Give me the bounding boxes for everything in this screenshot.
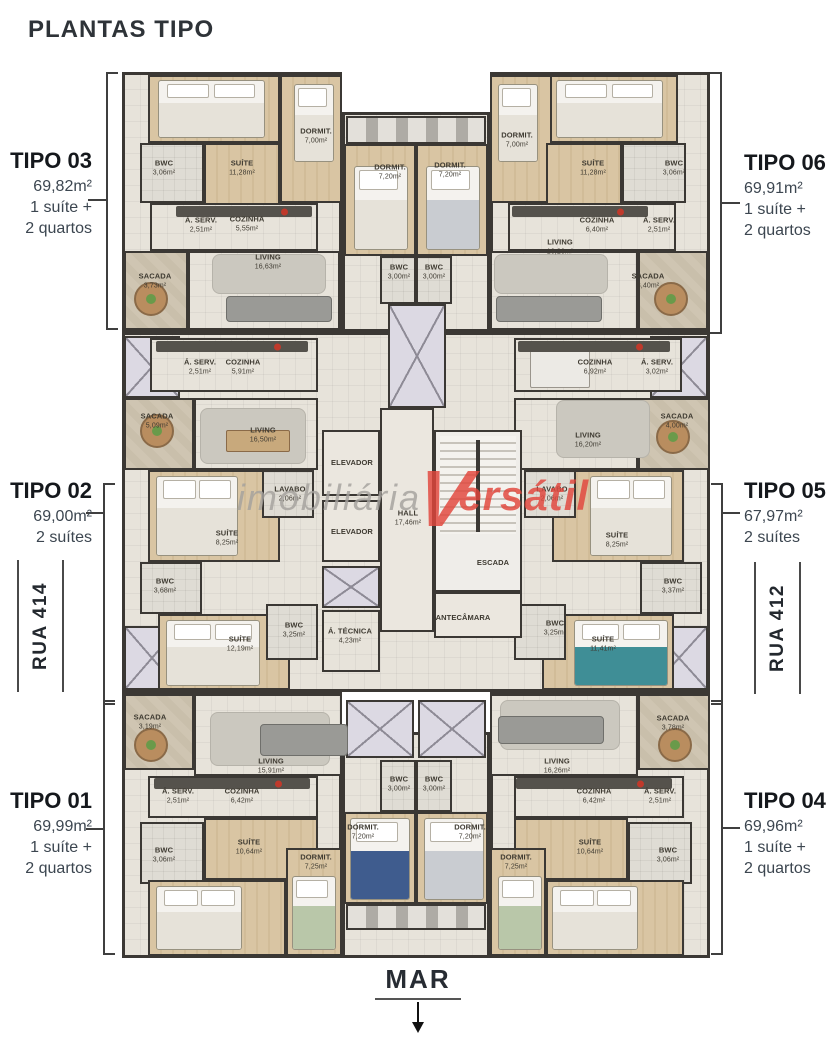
room-label: BWC3,25m²: [283, 621, 305, 640]
tipo02-bracket: [103, 483, 115, 705]
living-rug: [494, 254, 608, 294]
tipo03-label-block: TIPO 03 69,82m² 1 suíte + 2 quartos: [0, 148, 92, 239]
tipo02-label-block: TIPO 02 69,00m² 2 suítes: [0, 478, 92, 549]
sofa: [260, 724, 348, 756]
room-label: ESCADA: [477, 558, 509, 568]
room-label: BWC3,06m²: [153, 159, 175, 178]
room-label: BWC3,06m²: [663, 159, 685, 178]
room-label: BWC3,06m²: [153, 846, 175, 865]
kitchen-counter: [518, 341, 670, 352]
room-label: COZINHA6,42m²: [225, 787, 260, 806]
room-label: BWC3,25m²: [544, 619, 566, 638]
room-label: BWC3,37m²: [662, 577, 684, 596]
room-label: Á. SERV.3,02m²: [641, 358, 673, 377]
tipo04-bracket-tick: [723, 827, 740, 829]
room-label: COZINHA5,91m²: [226, 358, 261, 377]
room-label: LAVABO2,06m²: [274, 485, 305, 504]
room-label: BWC3,00m²: [388, 263, 410, 282]
stove-icon: [636, 343, 643, 350]
tipo05-area: 67,97m²: [744, 507, 826, 528]
tipo01-label-block: TIPO 01 69,99m² 1 suíte + 2 quartos: [0, 788, 92, 879]
room-label: SACADA3,78m²: [657, 714, 690, 733]
bed: [498, 84, 538, 162]
tipo01-area: 69,99m²: [0, 817, 92, 838]
bed: [294, 84, 334, 162]
balcony-table: [134, 728, 168, 762]
mar-arrow-icon: [412, 1022, 424, 1033]
room-label: LIVING16,26m²: [547, 238, 573, 257]
tipo03-area: 69,82m²: [0, 177, 92, 198]
tipo06-name: TIPO 06: [744, 150, 826, 176]
room-label: DORMIT.7,20m²: [454, 823, 486, 842]
stove-icon: [637, 780, 644, 787]
page-title: PLANTAS TIPO: [28, 16, 214, 44]
room-label: BWC3,00m²: [388, 775, 410, 794]
room-label: BWC3,00m²: [423, 263, 445, 282]
room-label: COZINHA5,55m²: [230, 215, 265, 234]
tipo02-name: TIPO 02: [0, 478, 92, 504]
bed: [590, 476, 672, 556]
room-label: DORMIT.7,25m²: [300, 853, 332, 872]
room-label: SACADA4,00m²: [661, 412, 694, 431]
bed: [552, 886, 638, 950]
room-label: ELEVADOR: [331, 527, 373, 537]
tipo06-area: 69,91m²: [744, 179, 826, 200]
room-label: DORMIT.7,20m²: [347, 823, 379, 842]
stove-icon: [617, 208, 624, 215]
kitchen-counter: [156, 341, 308, 352]
tipo01-name: TIPO 01: [0, 788, 92, 814]
room-label: SACADA5,09m²: [141, 412, 174, 431]
room-label: SUÍTE11,41m²: [590, 635, 616, 654]
room-label: SUÍTE12,19m²: [227, 635, 253, 654]
stove-icon: [281, 208, 288, 215]
window-band-bottom: [346, 904, 486, 930]
sofa: [498, 716, 604, 744]
living-rug: [556, 400, 650, 458]
tipo01-bracket: [103, 700, 115, 955]
tipo03-name: TIPO 03: [0, 148, 92, 174]
balcony-table: [658, 728, 692, 762]
window-band-top: [346, 116, 486, 144]
room-label: COZINHA6,40m²: [580, 216, 615, 235]
room-label: SUÍTE11,28m²: [229, 159, 255, 178]
shaft-hatched-bottom-left: [346, 700, 414, 758]
room-label: SACADA3,40m²: [632, 272, 665, 291]
room-label: BWC3,06m²: [657, 846, 679, 865]
bed: [574, 620, 668, 686]
tipo04-label-block: TIPO 04 69,96m² 1 suíte + 2 quartos: [744, 788, 826, 879]
room-label: SACADA3,19m²: [134, 713, 167, 732]
room-label: SUÍTE8,25m²: [216, 529, 239, 548]
room-label: LAVABO2,06m²: [536, 485, 567, 504]
room-label: COZINHA6,42m²: [577, 787, 612, 806]
room-label: SUÍTE10,64m²: [577, 838, 603, 857]
street-line: [754, 562, 756, 694]
room-label: Á. SERV.2,51m²: [162, 787, 194, 806]
mar-label: MAR: [358, 964, 478, 995]
room-label: COZINHA6,92m²: [578, 358, 613, 377]
stair-rail: [476, 440, 480, 532]
room-label: Á. SERV.2,51m²: [185, 216, 217, 235]
tipo03-bracket: [106, 72, 118, 330]
room-label: SUÍTE10,64m²: [236, 838, 262, 857]
shaft-hatched-bottom-right: [418, 700, 486, 758]
room-label: Á. SERV.2,51m²: [184, 358, 216, 377]
room-label: ANTECÂMARA: [436, 613, 491, 623]
tipo02-area: 69,00m²: [0, 507, 92, 528]
stove-icon: [274, 343, 281, 350]
bed: [158, 80, 265, 138]
street-line: [17, 560, 19, 692]
stove-icon: [275, 780, 282, 787]
tipo05-bracket-tick: [723, 512, 740, 514]
room-label: ELEVADOR: [331, 458, 373, 468]
room-label: DORMIT.7,20m²: [434, 161, 466, 180]
tipo04-area: 69,96m²: [744, 817, 826, 838]
sofa: [226, 296, 332, 322]
bed: [498, 876, 542, 950]
tipo05-label-block: TIPO 05 67,97m² 2 suítes: [744, 478, 826, 549]
street-line: [799, 562, 801, 694]
street-label-rua-414: RUA 414: [17, 560, 64, 692]
room-label: DORMIT.7,25m²: [500, 853, 532, 872]
room-label: DORMIT.7,20m²: [374, 163, 406, 182]
mar-arrow-stem: [417, 1002, 419, 1022]
shaft-hatched-top: [388, 304, 446, 408]
tipo06-bracket-tick: [722, 202, 740, 204]
room-label: LIVING16,50m²: [250, 426, 276, 445]
tipo05-name: TIPO 05: [744, 478, 826, 504]
room-label: LIVING16,26m²: [544, 757, 570, 776]
floor-plan-page: PLANTAS TIPO TIPO 03 69,82m² 1 suíte + 2…: [0, 0, 826, 1050]
tipo05-bracket: [711, 483, 723, 705]
sofa: [496, 296, 602, 322]
room-label: Á. SERV.2,51m²: [643, 216, 675, 235]
mar-line: [375, 998, 461, 1000]
room-label: SUÍTE11,28m²: [580, 159, 606, 178]
room-label: SACADA3,73m²: [139, 272, 172, 291]
room-label: DORMIT.7,00m²: [501, 131, 533, 150]
room-label: Á. TÉCNICA4,23m²: [328, 627, 372, 646]
bed: [292, 876, 336, 950]
shaft-hatched-core: [322, 566, 380, 608]
room-label: LIVING16,20m²: [575, 431, 601, 450]
tipo06-bracket: [710, 72, 722, 334]
tipo04-name: TIPO 04: [744, 788, 826, 814]
room-label: LIVING16,63m²: [255, 253, 281, 272]
street-label-rua-412: RUA 412: [754, 562, 801, 694]
room-label: LIVING15,91m²: [258, 757, 284, 776]
room-label: BWC3,68m²: [154, 577, 176, 596]
mar-indicator: MAR: [358, 964, 478, 1033]
bed: [556, 80, 663, 138]
tipo06-label-block: TIPO 06 69,91m² 1 suíte + 2 quartos: [744, 150, 826, 241]
street-line: [62, 560, 64, 692]
room-label: DORMIT.7,00m²: [300, 127, 332, 146]
tipo04-bracket: [711, 700, 723, 955]
room-label: Á. SERV.2,51m²: [644, 787, 676, 806]
room-label: HALL17,46m²: [395, 509, 421, 528]
bed: [156, 886, 242, 950]
room-label: BWC3,00m²: [423, 775, 445, 794]
room-label: SUÍTE8,25m²: [606, 531, 629, 550]
